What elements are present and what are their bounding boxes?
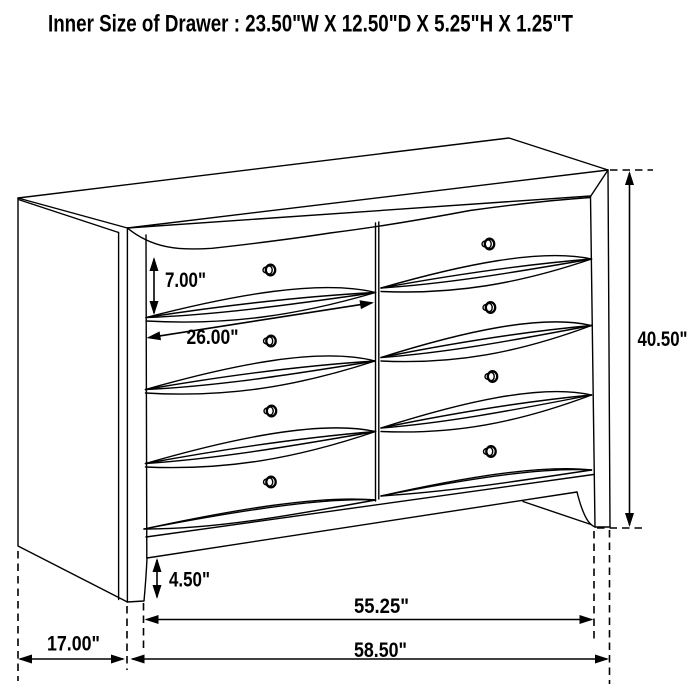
svg-text:26.00": 26.00" (187, 326, 239, 349)
svg-text:17.00": 17.00" (47, 633, 100, 656)
svg-text:7.00": 7.00" (165, 269, 206, 292)
svg-text:Inner Size of Drawer : 23.50"W: Inner Size of Drawer : 23.50"W X 12.50"D… (48, 11, 573, 38)
svg-text:40.50": 40.50" (638, 328, 688, 351)
svg-text:55.25": 55.25" (354, 595, 409, 618)
svg-text:4.50": 4.50" (169, 569, 210, 592)
svg-text:58.50": 58.50" (354, 639, 407, 662)
